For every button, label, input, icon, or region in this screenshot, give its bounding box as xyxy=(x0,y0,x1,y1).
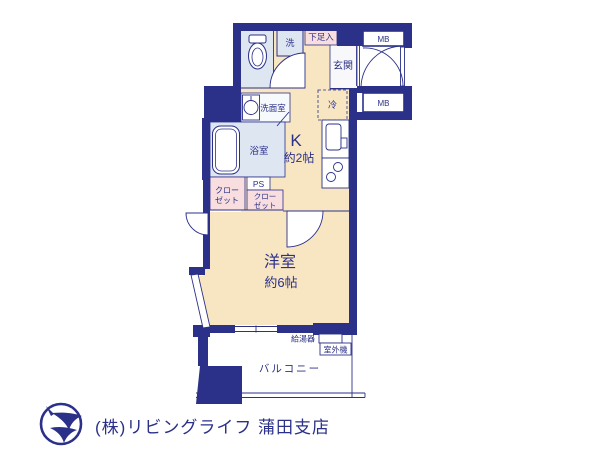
kitchen-sink-bowl xyxy=(326,124,341,150)
laundry-label: 洗 xyxy=(285,37,294,48)
wall-balcony-block xyxy=(196,366,242,404)
wall-top xyxy=(233,23,412,31)
wall-balcony-left xyxy=(198,333,208,366)
western-room-label: 洋室 xyxy=(264,253,296,271)
balcony-label: バルコニー xyxy=(259,363,321,375)
wall-left-upper xyxy=(233,23,241,90)
wall-left-closet xyxy=(203,177,210,210)
entrance-label: 玄関 xyxy=(333,59,353,72)
wall-right-mb xyxy=(404,86,412,120)
kitchen-counter xyxy=(322,120,349,188)
toilet-tank xyxy=(249,35,266,43)
wall-band-below-mb xyxy=(357,112,412,120)
water-heater-label: 給湯器 xyxy=(291,334,315,344)
toilet-bowl xyxy=(249,43,267,69)
mb-top-label: MB xyxy=(378,35,390,44)
closet1-label-line2: ゼット xyxy=(215,195,239,205)
kitchen-stove-unit xyxy=(322,158,349,188)
shoe-box-label: 下足入 xyxy=(308,32,334,42)
toilet-icon xyxy=(249,35,267,69)
mb-bottom-label: MB xyxy=(378,99,390,108)
refrigerator-label: 冷 xyxy=(328,99,337,110)
wall-left-mid xyxy=(202,118,210,180)
wall-top-mid-block xyxy=(337,23,363,46)
closet2-label-line2: ゼット xyxy=(254,200,277,210)
wall-bottom-b xyxy=(277,325,313,333)
kitchen-label: K xyxy=(290,131,302,150)
washbasin-icon xyxy=(243,95,260,120)
closet2-label-line1: クロー xyxy=(254,192,277,201)
washbasin-bowl xyxy=(244,101,258,115)
water-heater-unit xyxy=(319,334,342,343)
side-door-arc xyxy=(186,213,208,235)
wall-right-top xyxy=(404,23,412,48)
washroom-label: 洗面室 xyxy=(260,103,286,113)
wall-right-main xyxy=(349,88,357,335)
closet1-label-line1: クロー xyxy=(215,186,239,195)
floorplan-drawing: 洗 下足入 玄関 MB MB 洗面室 浴室 冷 K 約2帖 クロー ゼット PS… xyxy=(0,0,600,450)
company-name: (株)リビングライフ 蒲田支店 xyxy=(95,418,330,437)
logo-circle xyxy=(41,404,81,444)
company-logo xyxy=(41,404,82,444)
bathroom-label: 浴室 xyxy=(249,145,268,157)
wall-column-block xyxy=(204,86,241,122)
bathtub-icon xyxy=(213,126,240,174)
ps-label: PS xyxy=(253,179,265,189)
western-room-size-label: 約6帖 xyxy=(264,275,297,290)
bathtub-outer xyxy=(213,126,240,174)
floorplan-page: 洗 下足入 玄関 MB MB 洗面室 浴室 冷 K 約2帖 クロー ゼット PS… xyxy=(0,0,600,450)
kitchen-size-label: 約2帖 xyxy=(284,150,315,165)
outdoor-unit-label: 室外機 xyxy=(324,345,348,355)
wall-band-above-mb xyxy=(357,86,412,93)
kitchen-faucet xyxy=(341,138,347,148)
